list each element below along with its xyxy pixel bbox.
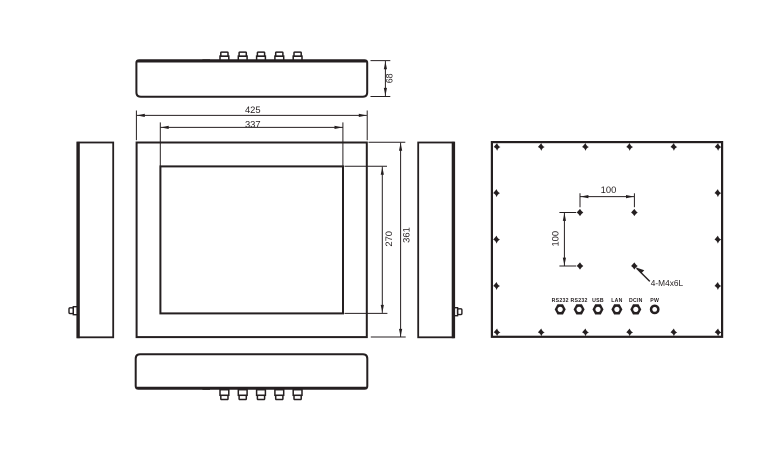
svg-text:100: 100: [549, 231, 560, 247]
svg-text:LAN: LAN: [611, 298, 622, 304]
svg-text:USB: USB: [592, 298, 604, 304]
svg-text:270: 270: [383, 231, 394, 247]
svg-text:337: 337: [245, 119, 261, 130]
svg-text:PW: PW: [650, 298, 659, 304]
svg-text:DCIN: DCIN: [629, 298, 643, 304]
svg-text:425: 425: [245, 104, 261, 115]
svg-text:RS232: RS232: [552, 298, 569, 304]
svg-text:68: 68: [385, 73, 395, 83]
svg-text:100: 100: [601, 184, 617, 195]
svg-text:RS232: RS232: [571, 298, 588, 304]
svg-text:4-M4x6L: 4-M4x6L: [651, 278, 684, 288]
svg-text:361: 361: [400, 227, 411, 243]
